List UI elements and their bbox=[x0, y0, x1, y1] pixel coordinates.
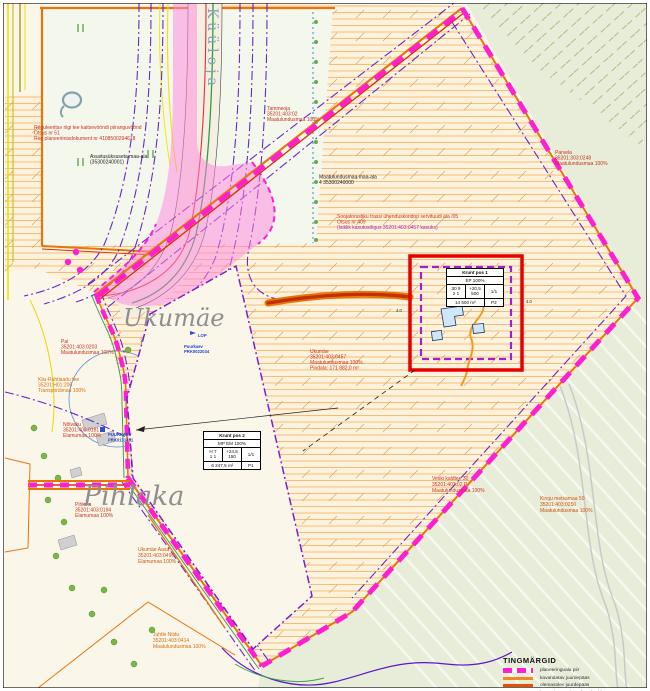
legend-item: kavandatav juurdepääs bbox=[503, 676, 645, 681]
svg-text:PRK0131451: PRK0131451 bbox=[108, 438, 134, 443]
place-ukumae: Ukumäe bbox=[123, 304, 225, 332]
site-table-krunt2: Krunt pos 2 MP EM 100% H 7 1 1 +24,5 150… bbox=[203, 431, 261, 470]
dimension-left: 4.0 bbox=[396, 308, 402, 313]
table-cell: 150 bbox=[223, 454, 241, 459]
svg-text:Maatulundusmaa 100%: Maatulundusmaa 100% bbox=[432, 488, 485, 494]
table-cell: 1 1 bbox=[204, 454, 222, 459]
table-area: 6 247,5 m² bbox=[204, 462, 241, 469]
svg-text:Maatulundusmaa 100%: Maatulundusmaa 100% bbox=[540, 508, 593, 514]
svg-text:Reg planeerimisdokument nr 410: Reg planeerimisdokument nr 4108500294618 bbox=[34, 136, 136, 142]
svg-text:(Isiklik kasutusõigus 35201:40: (Isiklik kasutusõigus 35201:403:0457 kas… bbox=[337, 225, 438, 231]
legend-swatch-boundary bbox=[503, 668, 533, 673]
planning-map-canvas: Reguleeritav riigi tee kaitsevööndi piir… bbox=[0, 0, 650, 691]
stream-kuuloja: Küüloja bbox=[204, 8, 220, 90]
table-cell: 1/1 bbox=[241, 448, 260, 460]
puurkaev1-label: PUURKAEV bbox=[108, 432, 132, 437]
table-cell: 500 bbox=[466, 291, 484, 296]
table-title: Krunt pos 1 bbox=[447, 269, 503, 276]
svg-text:Maatulundusmaa 100%: Maatulundusmaa 100% bbox=[267, 117, 320, 123]
table-pos: P1 bbox=[241, 462, 260, 469]
table-landuse: MP EM 100% bbox=[204, 439, 260, 447]
map-drawing: Reguleeritav riigi tee kaitsevööndi piir… bbox=[0, 0, 650, 691]
svg-text:Transpordimaa 100%: Transpordimaa 100% bbox=[38, 388, 86, 394]
site-table-krunt1: Krunt pos 1 EP 100% 30 9 2 1 +20,5 500 1… bbox=[446, 268, 504, 307]
svg-text:Maatulundusmaa 100%: Maatulundusmaa 100% bbox=[153, 644, 206, 650]
dimension-right: 4.0 bbox=[526, 299, 532, 304]
svg-text:Pindala: 171 882,0 m²: Pindala: 171 882,0 m² bbox=[310, 366, 359, 372]
well-icon bbox=[100, 427, 105, 432]
legend-swatch-existing-access bbox=[503, 684, 533, 687]
table-pos: P2 bbox=[484, 299, 503, 306]
puurkaev2-label: LOP bbox=[198, 333, 207, 338]
svg-text:Maatulundusmaa 100%: Maatulundusmaa 100% bbox=[61, 350, 114, 356]
svg-text:Elamumaa 100%: Elamumaa 100% bbox=[75, 513, 114, 519]
place-pihlaka: Pihlaka bbox=[82, 481, 184, 512]
svg-text:Elamumaa 100%: Elamumaa 100% bbox=[63, 433, 102, 439]
svg-text:(35300240001): (35300240001) bbox=[90, 160, 124, 166]
legend-item: olemasolev juurdepääs bbox=[503, 683, 645, 688]
svg-text:PRK0022034: PRK0022034 bbox=[184, 349, 210, 354]
table-title: Krunt pos 2 bbox=[204, 432, 260, 439]
svg-text:Elamumaa 100%: Elamumaa 100% bbox=[138, 559, 177, 565]
svg-text:Maatulundusmaa 100%: Maatulundusmaa 100% bbox=[555, 161, 608, 167]
table-cell: 2 1 bbox=[447, 291, 465, 296]
legend-swatch-planned-access bbox=[503, 677, 533, 680]
legend: TINGMÄRGID planeeringuala piir kavandata… bbox=[503, 656, 645, 691]
table-cell: 1/1 bbox=[484, 285, 503, 297]
svg-text:4 35300240000: 4 35300240000 bbox=[319, 180, 354, 186]
legend-title: TINGMÄRGID bbox=[503, 656, 645, 665]
table-area: 14 500 m² bbox=[447, 299, 484, 306]
legend-item: planeeringuala piir bbox=[503, 668, 645, 673]
table-landuse: EP 100% bbox=[447, 276, 503, 284]
